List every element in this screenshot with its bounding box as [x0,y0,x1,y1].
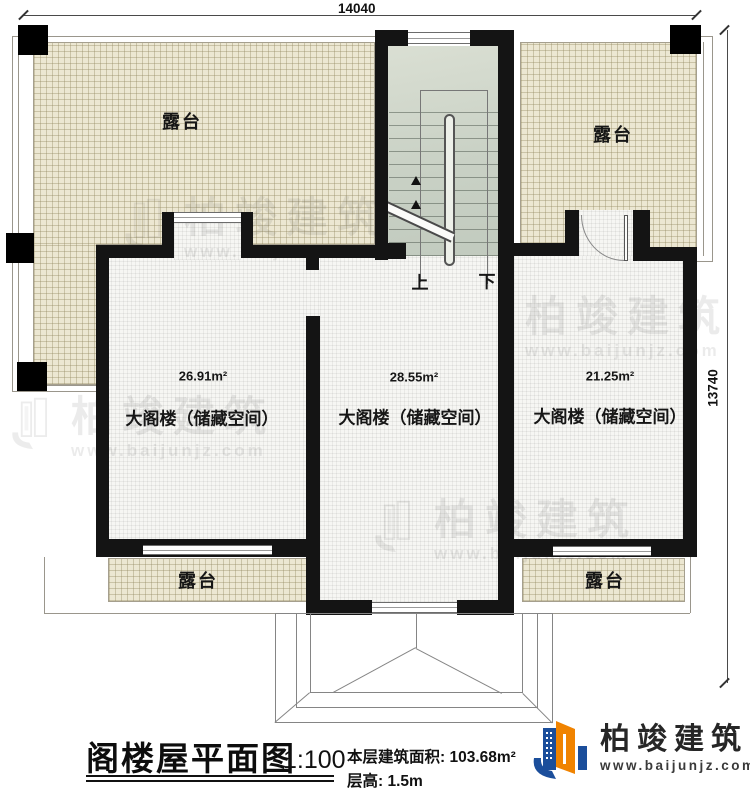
right-dimension-label: 13740 [706,369,721,407]
stair-up-arrow [411,200,421,209]
terrace-label-bottom-right: 露台 [585,567,625,593]
room-left-alcove-floor [174,222,241,260]
parapet-line [12,36,377,37]
floor-height-text: 层高: 1.5m [347,769,423,791]
terrace-label-top-left: 露台 [162,108,202,134]
stair-up-arrow [411,176,421,185]
room3-area: 21.25m² [586,369,634,384]
room2-name: 大阁楼（储藏空间） [339,404,492,429]
doorway-gap-floor [306,268,320,318]
wall-room3-top-a [514,243,567,256]
watermark-logo-icon [5,395,61,451]
stair-down-guide-line [487,90,488,284]
wall-stairwell-bottom-stub [375,243,406,259]
column [17,362,47,391]
wall-room1-room2-stub [306,245,319,270]
company-website: www.baijunjz.com [600,758,750,773]
right-dimension-line [727,30,728,683]
window-room3-bottom [553,546,651,556]
terrace-label-bottom-left: 露台 [178,567,218,593]
stair-down-label: 下 [479,268,496,293]
room-right-floor [514,254,683,544]
room1-area: 26.91m² [179,369,227,384]
plan-title: 阁楼屋平面图 [86,732,296,780]
parapet-line [12,391,97,392]
door-leaf [624,215,628,261]
room-middle-floor [320,256,498,602]
wall-room1-left [96,245,109,557]
roof-ridge-line [416,613,417,648]
parapet-line [712,36,713,262]
window-room1-bottom [143,545,272,555]
stair-guide-line [420,90,488,91]
wall-stairwell-top-left [375,30,408,46]
parapet-line [18,42,19,386]
floor-area-text: 本层建筑面积: 103.68m² [347,745,516,767]
column [6,233,34,263]
plan-scale: 1:100 [283,746,346,775]
room3-name: 大阁楼（储藏空间） [534,403,687,428]
wall-room1-room2 [306,316,320,615]
eave-line [690,556,691,613]
room2-area: 28.55m² [390,370,438,385]
window-stairwell [408,32,470,44]
stair-up-guide-line [420,90,421,282]
company-logo-icon [528,718,592,780]
dim-tick [719,25,730,36]
wall-alcove-left [162,212,174,258]
company-logo: 柏竣建筑 www.baijunjz.com [528,718,750,780]
room1-name: 大阁楼（储藏空间） [126,405,279,430]
wall-stairwell-left [375,30,388,260]
column [18,25,48,55]
wall-stairwell-top-right [470,30,500,46]
floor-plan: 14040 13740 柏竣建筑 www.baijunjz.com 柏竣建筑 w… [0,0,750,794]
window-room1-alcove [174,212,241,223]
roof-rect-outer [275,613,553,723]
parapet-line [703,42,704,256]
company-name: 柏竣建筑 [600,725,750,755]
room-left-floor [107,258,307,542]
parapet-line [12,36,13,392]
stair-handrail [444,114,455,266]
eave-line [44,557,45,613]
column [670,25,701,54]
wall-door-stub-left [565,210,579,256]
terrace-label-top-right: 露台 [593,121,633,147]
wall-alcove-right [241,212,253,258]
stair-up-label: 上 [412,269,429,294]
dim-tick [719,678,730,689]
title-underline [86,775,334,782]
window-room2-bottom [372,602,457,613]
wall-center-vertical [498,30,514,615]
top-dimension-label: 14040 [338,1,376,16]
